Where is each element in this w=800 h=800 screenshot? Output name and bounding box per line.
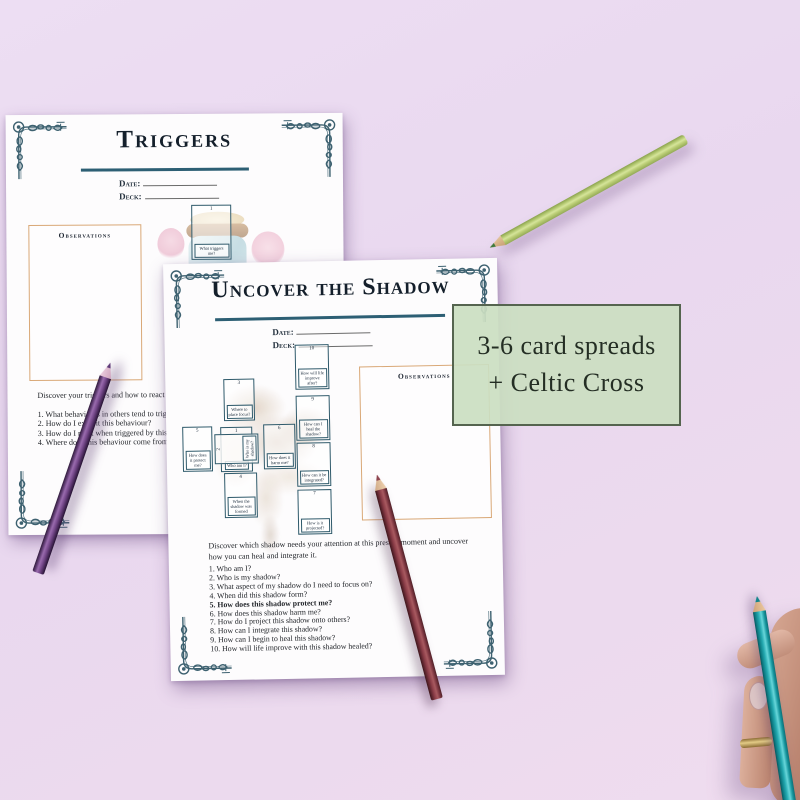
tarot-card-slot: 7 How is it projected?	[297, 489, 332, 535]
tarot-card-slot: 4 When the shadow was formed	[224, 472, 258, 518]
date-blank-line	[297, 325, 371, 334]
green-pencil	[487, 134, 688, 252]
title-underline	[81, 167, 249, 171]
card-number: 10	[309, 346, 314, 351]
tarot-card-slot-crossing: 2 Who is my shadow?	[214, 433, 259, 464]
card-number: 6	[278, 426, 281, 431]
date-blank-line	[143, 178, 217, 187]
badge-line-2: + Celtic Cross	[489, 365, 645, 402]
card-label: How can I heal the shadow?	[299, 419, 328, 438]
deck-field: Deck:	[119, 191, 219, 202]
card-label: How can it be integrated?	[300, 470, 329, 484]
observations-box: Observations	[28, 224, 142, 381]
tarot-card-slot: 5 How does it protect me?	[182, 426, 213, 472]
card-number: 5	[196, 429, 199, 434]
tarot-card-slot: 6 How does it harm me?	[263, 424, 296, 470]
date-field: Date:	[119, 178, 217, 189]
tarot-card-slot: 9 How can I heal the shadow?	[296, 395, 331, 441]
card-label: What triggers me?	[194, 244, 229, 257]
card-label: Where to place focus?	[226, 405, 252, 419]
observations-heading: Observations	[29, 230, 140, 240]
card-number: 7	[313, 491, 316, 496]
product-photo: Triggers Date: Deck: 1 What triggers me?…	[0, 0, 800, 800]
badge-line-1: 3-6 card spreads	[477, 328, 655, 365]
deck-label: Deck:	[119, 191, 142, 201]
page-title: Triggers	[6, 125, 343, 155]
tarot-card-slot: 10 How will life improve after?	[295, 344, 330, 390]
title-underline	[215, 314, 445, 321]
card-label: How will life improve after?	[298, 368, 327, 387]
flower-illustration	[157, 228, 184, 260]
intro-text: Discover which shadow needs your attenti…	[208, 535, 476, 562]
date-field: Date:	[272, 325, 371, 337]
card-label: How does it harm me?	[266, 453, 293, 467]
card-number: 4	[239, 475, 242, 480]
question-list: 1. Who am I? 2. Who is my shadow? 3. Wha…	[209, 560, 486, 654]
card-number: 3	[238, 381, 241, 386]
date-label: Date:	[119, 178, 140, 188]
feature-badge: 3-6 card spreads + Celtic Cross	[452, 304, 681, 426]
tarot-card-slot: 8 How can it be integrated?	[296, 442, 331, 487]
card-number: 1	[210, 207, 213, 212]
card-number: 2	[217, 448, 222, 451]
card-number: 8	[312, 444, 315, 449]
tarot-card-slot: 3 Where to place focus?	[223, 379, 255, 422]
card-label: How does it protect me?	[185, 451, 210, 470]
tarot-card-slot: 1 What triggers me?	[191, 205, 231, 260]
date-label: Date:	[272, 327, 294, 337]
deck-blank-line	[145, 191, 219, 200]
card-label: When the shadow was formed	[227, 497, 255, 516]
card-label: Who is my shadow?	[243, 436, 257, 461]
deck-label: Deck:	[273, 340, 296, 350]
card-number: 9	[311, 397, 314, 402]
card-label: How is it projected?	[300, 518, 329, 532]
